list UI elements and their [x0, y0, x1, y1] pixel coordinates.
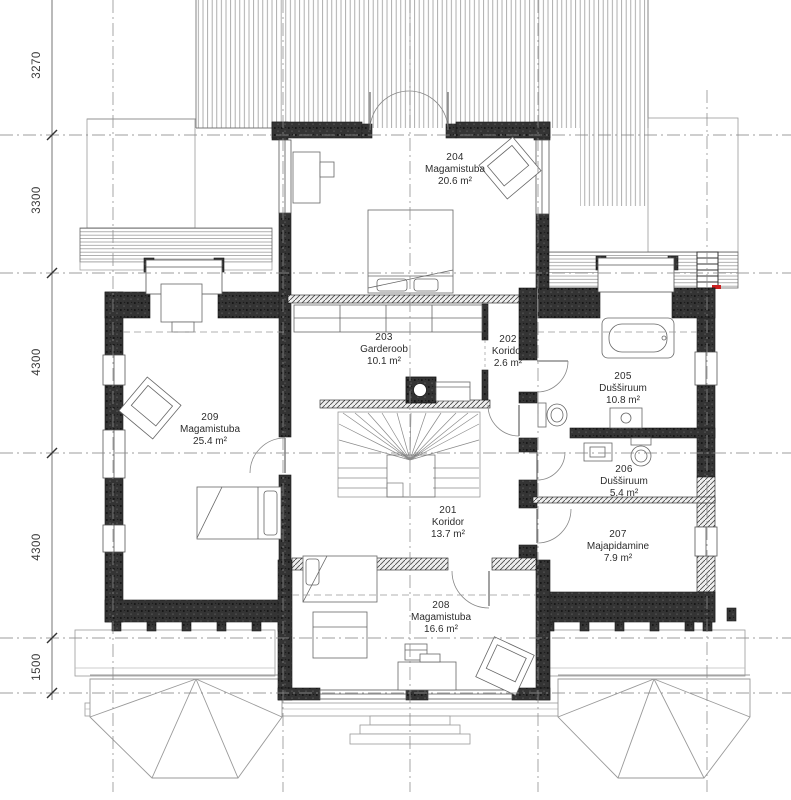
wardrobe-203 [294, 305, 482, 332]
dimension-line [47, 0, 57, 700]
window [695, 352, 717, 385]
lower-left-bay-roof [90, 675, 282, 778]
room-name: Magamistuba [180, 424, 240, 436]
vanity-205 [610, 408, 642, 428]
floor-plan-drawing [0, 0, 791, 800]
room-area: 5.4 m² [600, 488, 648, 500]
room-label-201: 201 Koridor 13.7 m² [431, 505, 465, 541]
room-area: 16.6 m² [411, 624, 471, 636]
armchair-204 [479, 137, 541, 199]
dim-label-3270: 3270 [31, 51, 43, 79]
lower-left-terrace [75, 630, 275, 676]
room-number: 204 [425, 152, 485, 164]
window [103, 525, 125, 552]
room-name: Koridor [492, 346, 524, 358]
room-label-202: 202 Koridor 2.6 m² [492, 334, 524, 370]
room-label-206: 206 Dušširuum 5.4 m² [600, 464, 648, 500]
toilet-205 [538, 403, 567, 427]
room-name: Dušširuum [600, 476, 648, 488]
window [103, 355, 125, 385]
room-number: 201 [431, 505, 465, 517]
room-label-208: 208 Magamistuba 16.6 m² [411, 600, 471, 636]
window [103, 430, 125, 478]
room-area: 2.6 m² [492, 358, 524, 370]
door-201-207 [537, 509, 571, 543]
door-202-201 [488, 405, 519, 436]
bay-window-right [598, 258, 674, 292]
room-area: 20.6 m² [425, 176, 485, 188]
wall-205-206 [570, 428, 715, 438]
staircase [338, 412, 480, 497]
room-name: Dušširuum [599, 383, 647, 395]
room-name: Garderoob [360, 344, 408, 356]
room-area: 13.7 m² [431, 529, 465, 541]
door-201-206 [537, 452, 565, 480]
ladder-icon [697, 252, 718, 288]
room-number: 208 [411, 600, 471, 612]
room-area: 10.8 m² [599, 395, 647, 407]
room-label-204: 204 Magamistuba 20.6 m² [425, 152, 485, 188]
floor-plan: 201 Koridor 13.7 m² 202 Koridor 2.6 m² 2… [0, 0, 791, 800]
bed-204 [368, 210, 453, 293]
chimney [406, 377, 470, 403]
room-area: 25.4 m² [180, 436, 240, 448]
dim-label-1500: 1500 [31, 653, 43, 681]
dim-label-3300: 3300 [31, 186, 43, 214]
room-label-203: 203 Garderoob 10.1 m² [360, 332, 408, 368]
armchair-208 [476, 637, 534, 695]
room-number: 209 [180, 412, 240, 424]
dim-label-4300-a: 4300 [31, 348, 43, 376]
room-name: Magamistuba [411, 612, 471, 624]
window [320, 690, 406, 699]
room-label-209: 209 Magamistuba 25.4 m² [180, 412, 240, 448]
door-202-205 [537, 361, 568, 392]
window [279, 140, 291, 213]
bathtub [602, 318, 674, 358]
room-area: 7.9 m² [587, 553, 649, 565]
door-209 [250, 438, 285, 473]
upper-right-porch-outline [648, 118, 738, 252]
dresser-204 [293, 152, 334, 203]
window [428, 690, 512, 699]
window [695, 527, 717, 556]
window-seat-209 [161, 284, 202, 332]
room-label-207: 207 Majapidamine 7.9 m² [587, 529, 649, 565]
armchair-209 [119, 377, 181, 439]
room-name: Koridor [431, 517, 465, 529]
room-number: 206 [600, 464, 648, 476]
room-number: 205 [599, 371, 647, 383]
table-208 [313, 612, 367, 658]
room-number: 202 [492, 334, 524, 346]
room-name: Magamistuba [425, 164, 485, 176]
dim-label-4300-b: 4300 [31, 533, 43, 561]
room-area: 10.1 m² [360, 356, 408, 368]
room-number: 203 [360, 332, 408, 344]
room-name: Majapidamine [587, 541, 649, 553]
wall-204-203 [288, 295, 536, 303]
room-number: 207 [587, 529, 649, 541]
room-label-205: 205 Dušširuum 10.8 m² [599, 371, 647, 407]
sink-206 [584, 443, 612, 461]
toilet-206 [631, 438, 651, 466]
lower-right-terrace [543, 630, 745, 676]
bed-209 [197, 487, 281, 539]
lower-right-bay-roof [558, 675, 750, 778]
